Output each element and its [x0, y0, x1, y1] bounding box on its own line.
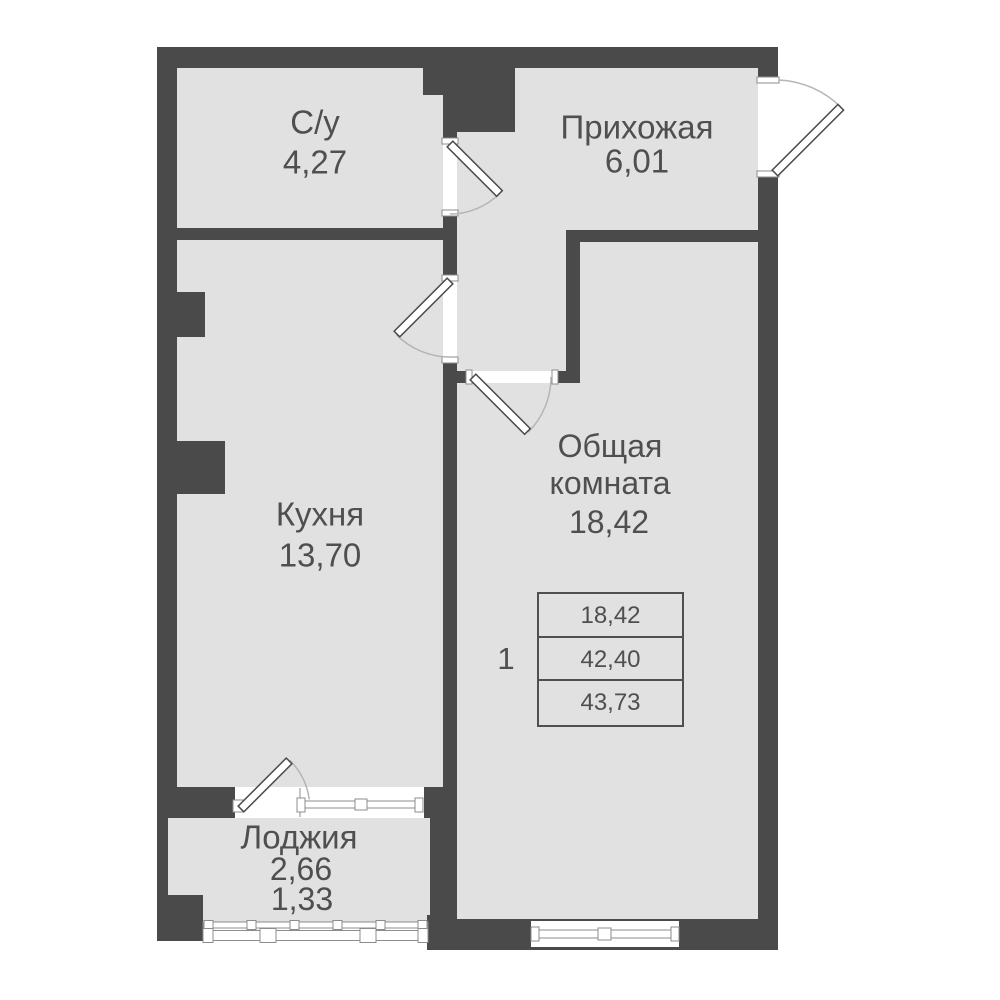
rail-big-post [360, 929, 376, 943]
rail-post [247, 921, 256, 930]
wall-living-left [566, 230, 580, 383]
jamb [552, 370, 558, 384]
kitchen-window-divider [355, 799, 367, 810]
rail-bottom [203, 931, 428, 941]
jamb [757, 77, 779, 83]
wall-left [157, 68, 177, 817]
wall-right [758, 47, 778, 950]
door-arc [779, 80, 841, 107]
area-summary-table: 18,42 42,40 43,73 [537, 592, 684, 727]
kitchen-window-cap-left [297, 798, 305, 812]
kitchen-area: 13,70 [279, 539, 362, 572]
wall-block-a [423, 68, 447, 95]
rail-post [376, 921, 385, 930]
summary-total-area: 43,73 [539, 681, 682, 725]
pilaster-2 [177, 441, 225, 494]
rail-top [203, 922, 428, 928]
loggia-label: Лоджия [241, 821, 358, 854]
bathroom-area: 4,27 [283, 146, 347, 179]
hallway-label: Прихожая [561, 111, 714, 144]
jamb [442, 357, 458, 363]
living-window-cap-left [531, 927, 539, 941]
kitchen-window-cap-right [415, 798, 423, 812]
pilaster-1 [177, 292, 205, 337]
wall-bathroom-bottom [157, 228, 457, 240]
opening-entrance-door [758, 77, 778, 177]
floor-plan: С/у 4,27 Прихожая 6,01 Кухня 13,70 Общая… [0, 0, 1000, 1000]
living-label-line2: комната [549, 467, 670, 499]
rail-end-post-right [418, 929, 428, 943]
rail-big-post [260, 929, 276, 943]
floor-plan-drawing [0, 0, 1000, 1000]
kitchen-label: Кухня [276, 498, 364, 531]
wall-top [157, 47, 778, 68]
jamb [442, 210, 458, 216]
living-window-cap-right [671, 927, 679, 941]
rail-post [290, 921, 299, 930]
door-leaf [772, 104, 843, 175]
wall-loggia-block [157, 895, 203, 941]
wall-hallway-bottom [566, 230, 758, 242]
hallway-area: 6,01 [605, 145, 669, 178]
bathroom-label: С/у [290, 106, 340, 139]
living-window-divider [598, 928, 611, 940]
rail-post [333, 921, 342, 930]
loggia-glazing [203, 921, 428, 943]
rail-end-post-left [203, 929, 213, 943]
summary-living-area: 18,42 [539, 594, 682, 638]
entrance-door [772, 80, 843, 176]
living-label-line1: Общая [558, 430, 663, 462]
wall-kitchen-bottom-left [157, 787, 235, 818]
wall-block-b [447, 68, 515, 132]
wall-kitchen-bottom-right [423, 787, 443, 818]
loggia-area-reduced: 1,33 [271, 883, 333, 915]
living-area: 18,42 [569, 506, 649, 538]
wall-left-loggia [157, 817, 168, 895]
summary-usable-area: 42,40 [539, 638, 682, 682]
jamb [466, 370, 472, 384]
unit-number: 1 [497, 641, 514, 677]
